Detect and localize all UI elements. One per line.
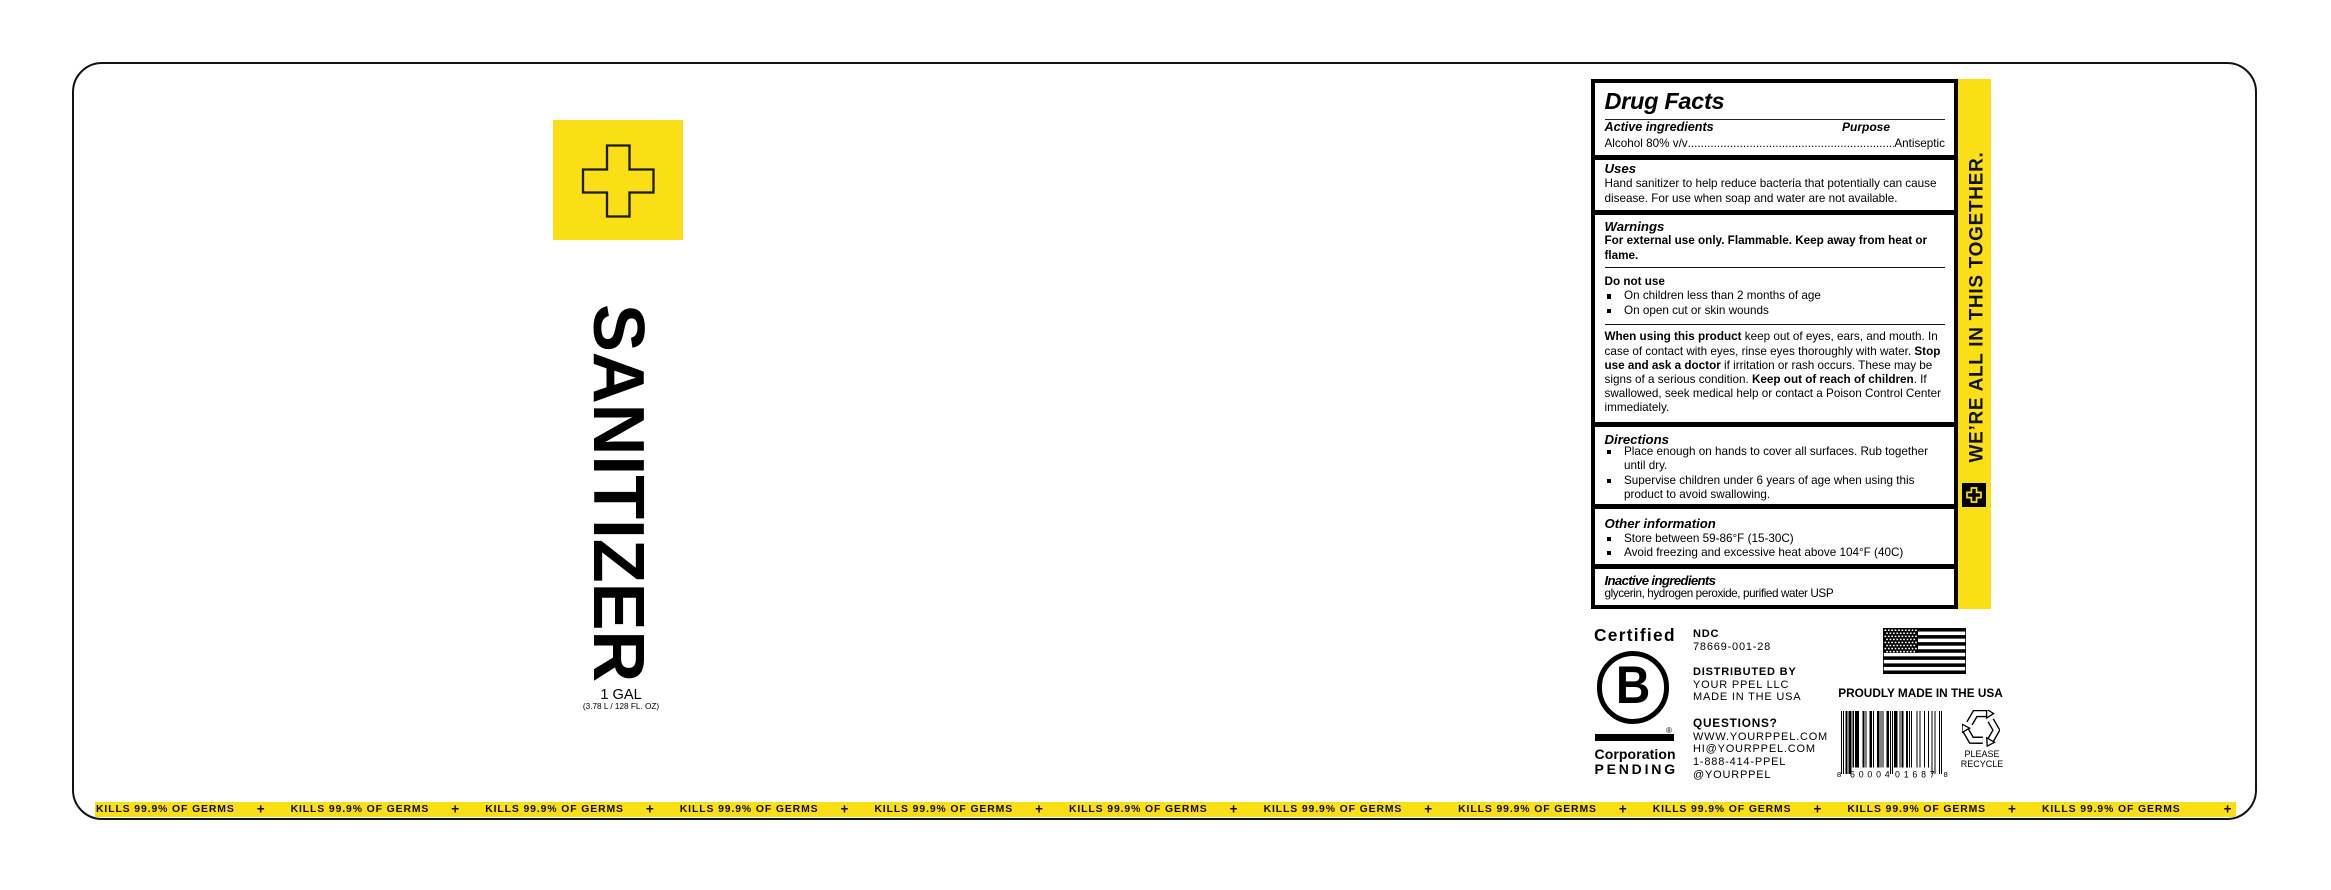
svg-text:8: 8 xyxy=(1944,770,1948,779)
svg-text:60004: 60004 xyxy=(1850,770,1893,780)
svg-text:01687: 01687 xyxy=(1895,770,1938,780)
svg-text:8: 8 xyxy=(1837,770,1841,779)
